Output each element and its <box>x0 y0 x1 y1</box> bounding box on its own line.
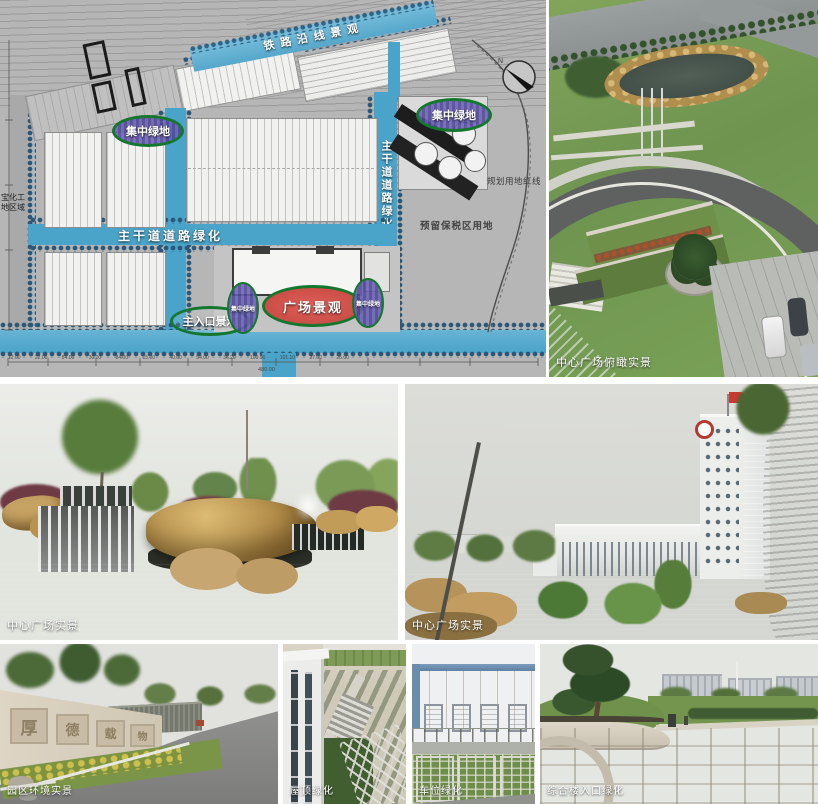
dimension-numbers: 12.00 22.00 84.00 30.00 84.00 15.00 40.0… <box>8 355 538 361</box>
bare-tree-trunk <box>246 410 248 490</box>
green-small-label-east: 集中绿地 <box>352 278 384 328</box>
distant-fields <box>317 650 406 666</box>
wall-panel: 厚 <box>10 708 48 744</box>
photo-caption: 中心广场实景 <box>7 617 79 633</box>
wall-corner-column <box>412 664 420 728</box>
panel-character: 德 <box>66 720 80 740</box>
plan-linework <box>0 0 546 377</box>
photo-entrance-greening: 综合楼入口绿化 <box>540 644 818 804</box>
photo-park-wall: 厚 德 载 物 园区环境实景 <box>0 644 278 804</box>
fountain-spray <box>294 490 322 522</box>
green-space-label-east: 集中绿地 <box>416 98 492 132</box>
flagpole <box>641 88 643 158</box>
water-plants <box>523 560 709 624</box>
rock <box>356 506 398 532</box>
rock <box>316 510 362 534</box>
north-label: N <box>498 58 503 65</box>
dimension-total: 480.00 <box>258 367 275 373</box>
photo-roof-greening: 屋顶绿化 <box>283 644 406 804</box>
photo-caption: 屋顶绿化 <box>290 782 334 797</box>
bollard <box>684 716 688 725</box>
photo-parking-greening: 车位绿化 <box>412 644 535 804</box>
submerged-rock <box>236 558 298 594</box>
photo-caption: 中心广场实景 <box>412 617 484 633</box>
wall-panel: 德 <box>56 714 89 745</box>
big-tree <box>52 390 148 484</box>
lawn-path <box>553 121 695 142</box>
photo-caption: 中心广场俯瞰实景 <box>556 354 652 370</box>
photo-waterfall: 中心广场实景 <box>0 384 398 640</box>
collage-page: 铁路沿线景观 主干道道路绿化 主干道道路绿化 <box>0 0 818 804</box>
submerged-rock <box>170 548 244 590</box>
photo-caption: 综合楼入口绿化 <box>547 782 624 797</box>
roof-trim-blue <box>412 664 535 671</box>
car-white <box>761 315 787 359</box>
red-line-label: 规划用地红线 <box>487 175 541 187</box>
shrub-row <box>688 708 818 719</box>
tower-windows <box>705 428 739 568</box>
photo-caption: 车位绿化 <box>419 782 463 797</box>
red-ornament <box>196 720 204 726</box>
wall-panel: 物 <box>130 724 155 747</box>
green-small-label-west: 集中绿地 <box>227 282 259 334</box>
car-dark <box>787 297 809 337</box>
panel-character: 载 <box>104 725 116 742</box>
plaza-label: 广场景观 <box>262 285 364 327</box>
photo-aerial-plaza: 中心广场俯瞰实景 <box>549 0 818 377</box>
green-space-label-west: 集中绿地 <box>112 115 184 147</box>
fence-strip <box>412 728 535 743</box>
wall-panel: 载 <box>96 720 125 747</box>
car-silver <box>799 343 818 377</box>
photo-office-pond: 中心广场实景 <box>405 384 818 640</box>
panel-character: 厚 <box>21 714 38 739</box>
bollard <box>668 714 676 727</box>
rock <box>735 592 787 614</box>
photo-caption: 园区环境实景 <box>7 782 73 797</box>
reserved-land-label: 预留保税区用地 <box>420 218 494 232</box>
parking-bay-outline <box>458 756 496 802</box>
paving-apron <box>412 742 535 754</box>
roof-logo <box>695 420 714 439</box>
site-plan: 铁路沿线景观 主干道道路绿化 主干道道路绿化 <box>0 0 546 377</box>
panel-character: 物 <box>138 728 148 743</box>
side-note-line2: 地区域 <box>1 202 25 213</box>
distant-road <box>323 644 406 650</box>
